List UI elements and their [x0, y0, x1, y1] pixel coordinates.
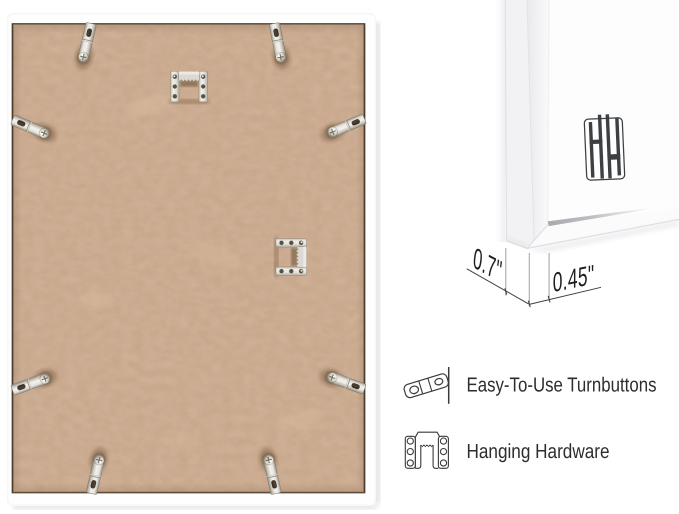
- svg-text:Easy-To-Use Turnbuttons: Easy-To-Use Turnbuttons: [467, 375, 657, 397]
- svg-text:Hanging Hardware: Hanging Hardware: [467, 441, 610, 463]
